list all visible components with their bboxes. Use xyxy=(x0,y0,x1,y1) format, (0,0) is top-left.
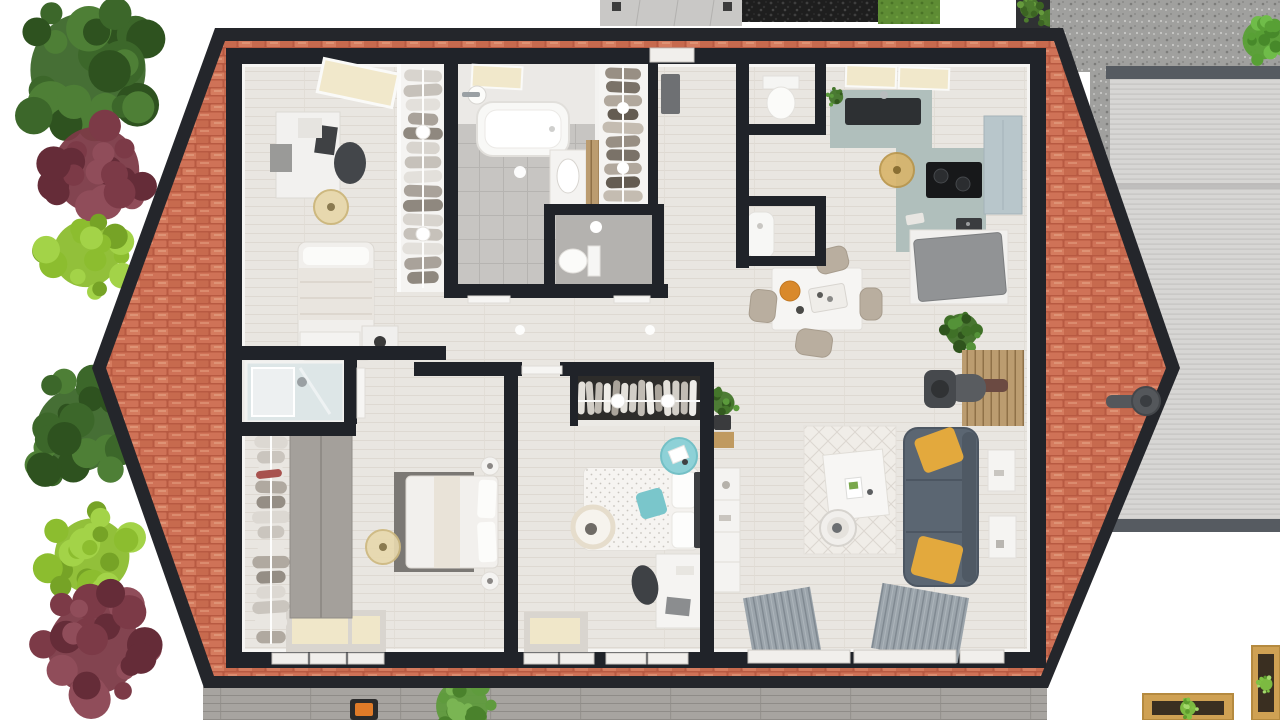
pendant-lamp-bedroom1-dot xyxy=(327,203,335,211)
water-heater xyxy=(747,212,774,258)
deck-lantern-fire xyxy=(355,703,373,716)
desk-chair xyxy=(334,142,366,184)
hall-ceiling-light-2 xyxy=(645,325,655,335)
garage-roof-border-top xyxy=(1106,66,1280,79)
shower-tray xyxy=(252,368,294,416)
window-master-2 xyxy=(310,653,346,664)
closet1-divider-wall xyxy=(397,64,401,292)
window-master-3 xyxy=(348,653,384,664)
wall-wc-right xyxy=(652,204,664,296)
cooktop-burner-2 xyxy=(956,177,970,191)
wall-wc-left xyxy=(544,204,555,296)
dining-item-dark xyxy=(796,306,804,314)
toilet2-bowl xyxy=(767,87,795,119)
cooktop-burner-1 xyxy=(934,169,948,183)
kids-desk xyxy=(656,554,702,628)
closet2-light-1 xyxy=(617,102,629,114)
bed-bedroom1-blanket xyxy=(298,268,374,320)
wall-entry-closet-top xyxy=(742,196,826,206)
wood-deck xyxy=(203,686,1047,720)
kids-closet-light-1 xyxy=(611,394,625,408)
chimney-cap-inner xyxy=(1140,395,1152,407)
dining-chair-south xyxy=(794,328,833,359)
kids-pillow-2 xyxy=(672,512,696,548)
master-window-glass-2 xyxy=(352,616,380,644)
window-kids-2 xyxy=(560,653,594,664)
garden-tree-6 xyxy=(29,579,162,719)
desk-papers xyxy=(298,118,322,138)
path-post-2 xyxy=(723,2,732,11)
dining-chair-east xyxy=(860,288,882,320)
master-pillow-2 xyxy=(477,522,497,563)
bathtub-drain xyxy=(549,126,555,132)
kitchen-faucet xyxy=(880,91,888,99)
door-leaf-wc xyxy=(614,296,650,303)
kids-pouf-dot xyxy=(682,459,688,465)
master-window-glass-1 xyxy=(292,616,348,644)
garage-roof-seam xyxy=(1110,183,1280,189)
wall-kids-right xyxy=(700,362,714,658)
entry-door-mat xyxy=(661,74,680,114)
dining-tray-item-2 xyxy=(827,296,833,302)
magazine-art xyxy=(849,482,859,490)
pendant-lamp-master-dot xyxy=(379,543,387,551)
wall-entry-closet-bottom xyxy=(742,256,826,266)
kids-rug-item xyxy=(585,523,597,535)
window-living-2 xyxy=(854,650,956,663)
wall-bedroom1-bottom xyxy=(226,346,446,360)
window-master-1 xyxy=(272,653,308,664)
garden-tree-3 xyxy=(32,214,135,300)
door-leaf-bathroom xyxy=(468,296,510,303)
bookshelf-item-2 xyxy=(719,515,731,521)
shelf-item-1 xyxy=(994,470,1004,476)
kids-desk-laptop xyxy=(665,597,691,616)
wall-master-top xyxy=(226,422,356,436)
wall-toilet2-bottom xyxy=(748,124,826,135)
desk-drawer-unit xyxy=(270,144,292,172)
bookshelf-item-1 xyxy=(722,481,730,489)
window-living-1 xyxy=(748,650,850,663)
wall-wc-top xyxy=(544,204,664,215)
wc-toilet-tank xyxy=(588,246,600,276)
pendant-lamp-kitchen-dot xyxy=(893,166,901,174)
wall-bedroom1-right xyxy=(444,56,458,298)
garage-roof-border-bottom xyxy=(1110,519,1280,532)
wall-toilet2-right xyxy=(815,56,826,135)
living-plant-pot xyxy=(714,415,731,430)
bath-wood-mat xyxy=(586,140,599,206)
window-kids-1 xyxy=(524,653,558,664)
kids-pillow-1 xyxy=(672,472,696,508)
water-heater-dot xyxy=(757,223,763,229)
side-table-item xyxy=(832,523,842,533)
dining-tray-item-1 xyxy=(817,292,823,298)
closet1-light-1 xyxy=(416,125,430,139)
door-leaf-master xyxy=(357,368,365,418)
wall-entry-right xyxy=(736,56,749,268)
dining-bowl xyxy=(780,281,800,301)
cooktop xyxy=(926,162,982,198)
living-plant-stand xyxy=(712,432,734,448)
wall-hall-bottom-east xyxy=(560,362,712,376)
master-bed-throw xyxy=(434,476,460,568)
floor-plan-stage xyxy=(0,0,1280,720)
kids-desk-books xyxy=(676,566,694,575)
wc-toilet-bowl xyxy=(559,249,587,273)
skylight-kitchen-2 xyxy=(899,67,950,90)
kids-closet-shelf-edge xyxy=(572,420,704,426)
concrete-path xyxy=(600,0,742,26)
door-leaf-kids xyxy=(522,366,562,374)
skylight-bathroom xyxy=(471,65,522,90)
kids-window-glass xyxy=(530,618,580,644)
wall-kids-left xyxy=(504,362,518,658)
kitchen-sink xyxy=(845,98,921,125)
front-door-top xyxy=(650,48,694,62)
window-hall-2 xyxy=(648,653,688,664)
dining-chair-west xyxy=(748,289,777,324)
wc-ceiling-light xyxy=(590,221,602,233)
sofa-backrest xyxy=(962,432,976,582)
vanity-basin xyxy=(557,159,579,193)
master-pillow-1 xyxy=(477,480,497,519)
fridge xyxy=(913,232,1006,301)
master-night-lamp-2 xyxy=(487,578,493,584)
wall-entry-closet-right xyxy=(815,196,826,266)
path-post-1 xyxy=(612,2,621,11)
floor-plan-canvas xyxy=(0,0,1280,720)
closet2-light-2 xyxy=(617,162,629,174)
shelf-item-2 xyxy=(996,540,1004,548)
window-living-3 xyxy=(960,650,1004,663)
grass-patch xyxy=(878,0,940,24)
bed-bedroom1-pillow xyxy=(303,247,369,265)
hall-ceiling-light-1 xyxy=(515,325,525,335)
skylight-kitchen-1 xyxy=(846,65,897,88)
shower-arm-bath xyxy=(462,92,480,97)
master-night-lamp-1 xyxy=(487,463,493,469)
closet1-light-2 xyxy=(416,227,430,241)
kids-closet-light-2 xyxy=(661,394,675,408)
wood-stove-top xyxy=(931,380,949,398)
coffee-machine-dot xyxy=(966,222,970,226)
dark-pebble-strip xyxy=(742,0,878,22)
wall-shelf-2 xyxy=(989,516,1016,558)
window-hall-1 xyxy=(606,653,646,664)
bath-ceiling-light xyxy=(514,166,526,178)
wall-closet2-right xyxy=(648,60,658,208)
wall-kids-closet-left xyxy=(570,374,578,426)
wall-shower-right xyxy=(344,358,357,424)
coffee-table-item xyxy=(867,489,873,495)
